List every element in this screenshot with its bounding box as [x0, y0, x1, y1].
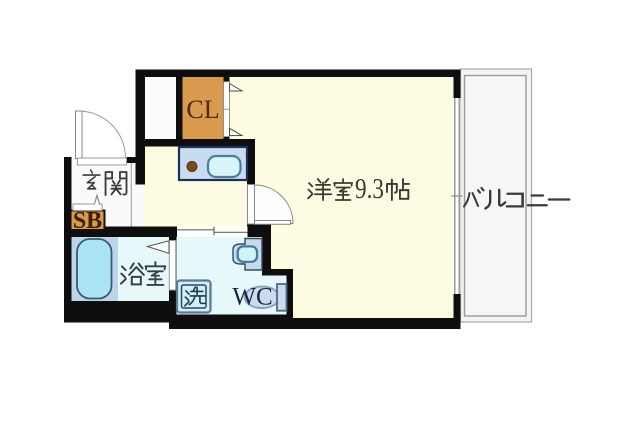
svg-text:9.3: 9.3	[355, 174, 384, 205]
svg-text:CL: CL	[186, 95, 219, 124]
svg-text:SB: SB	[73, 208, 102, 234]
svg-text:WC: WC	[232, 284, 272, 311]
